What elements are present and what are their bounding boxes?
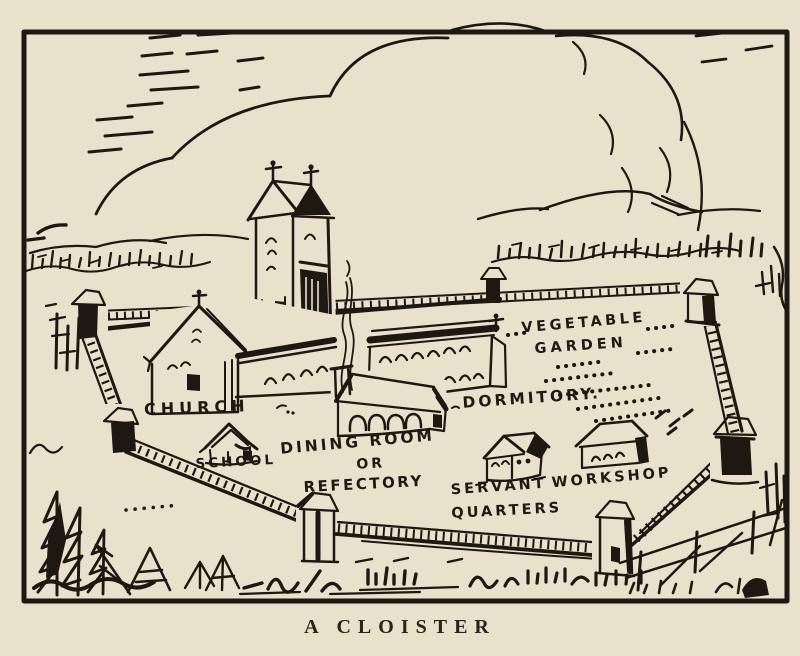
cloister-illustration: CHURCH SCHOOL DINING ROOM OR REFECTORY D… bbox=[0, 0, 800, 656]
left-gate-tower bbox=[70, 288, 108, 340]
church-label: CHURCH bbox=[144, 396, 250, 419]
caption: A CLOISTER bbox=[0, 616, 800, 639]
book-page: CHURCH SCHOOL DINING ROOM OR REFECTORY D… bbox=[0, 0, 800, 656]
workshop-building bbox=[572, 418, 650, 470]
bottom-left-gate-tower bbox=[296, 490, 342, 564]
left-corner-tower bbox=[102, 404, 140, 454]
bottom-right-gate-tower bbox=[592, 498, 640, 576]
dining-room-label-line2: OR bbox=[356, 455, 385, 472]
top-right-corner-tower bbox=[680, 274, 722, 326]
